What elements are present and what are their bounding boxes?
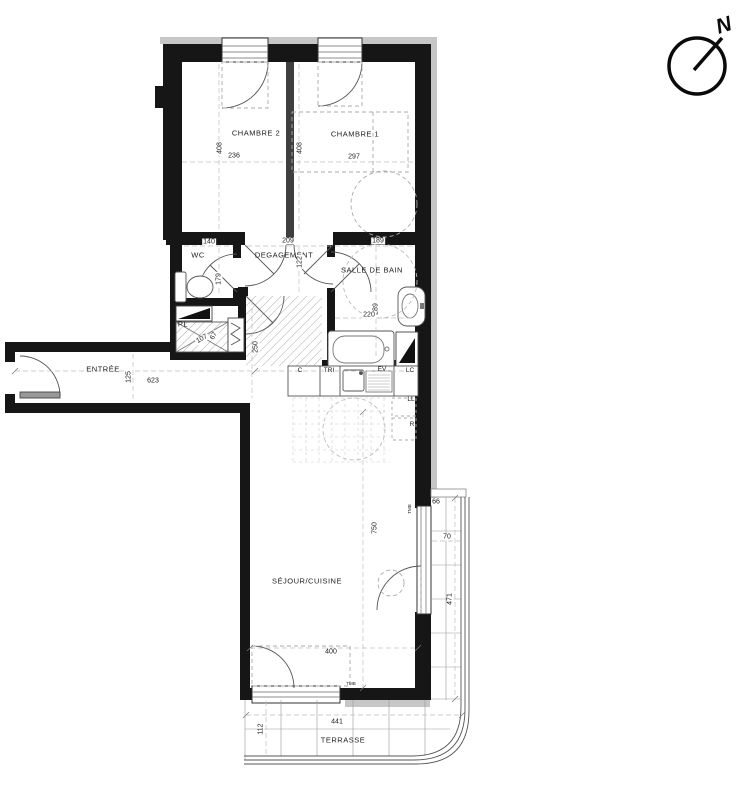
room-label-terrasse: TERRASSE xyxy=(321,736,365,745)
room-label-chambre-2: CHAMBRE 2 xyxy=(232,129,280,138)
label-tmb: TMB xyxy=(346,682,356,687)
label-lc: LC xyxy=(406,368,414,375)
window-chambre-2 xyxy=(222,38,268,62)
dimension-408: 408 xyxy=(297,141,304,155)
interior-partitions xyxy=(286,62,294,245)
dimension-220: 220 xyxy=(362,312,376,319)
kitchen-fixtures xyxy=(288,366,418,462)
dimension-140: 140 xyxy=(202,239,216,246)
window-chambre-1 xyxy=(318,38,362,62)
room-label-s-jour-cuisine: SÉJOUR/CUISINE xyxy=(272,577,342,586)
dimension-750: 750 xyxy=(372,521,379,535)
room-label-pl: PL xyxy=(178,320,188,329)
room-label-wc: WC xyxy=(191,251,205,260)
dimension-408: 408 xyxy=(217,141,224,155)
water-heater xyxy=(228,318,244,352)
compass-drawing xyxy=(669,38,725,94)
drainer xyxy=(366,371,392,392)
label-ll: LL xyxy=(407,397,414,404)
dimension-471: 471 xyxy=(447,592,454,606)
dimension-400: 400 xyxy=(324,649,338,656)
dimension-125: 125 xyxy=(126,370,133,384)
hall-hatch xyxy=(246,296,322,366)
dimension-189: 189 xyxy=(371,238,385,245)
dimension-112: 112 xyxy=(258,722,265,735)
dimension-297: 297 xyxy=(347,154,361,161)
room-label-chambre-1: CHAMBRE 1 xyxy=(331,130,379,139)
dimension-ticks xyxy=(12,368,465,718)
room-label-salle-de-bain: SALLE DE BAIN xyxy=(341,266,403,275)
window-swing-chambre-1 xyxy=(318,62,362,106)
door-entree xyxy=(20,356,60,398)
turning-circle-chambre-1 xyxy=(351,171,417,237)
dimension-250: 250 xyxy=(253,340,260,354)
dimension-179: 179 xyxy=(216,272,223,286)
compass-needle-icon xyxy=(694,38,722,70)
terrace-railing xyxy=(244,497,469,764)
bed-chambre-1 xyxy=(292,112,408,172)
dimension-209: 209 xyxy=(281,238,295,245)
label-ev: EV xyxy=(378,367,387,374)
turning-circle xyxy=(343,244,417,318)
terrace xyxy=(244,489,469,764)
kitchen-floor-grid xyxy=(293,398,390,462)
dimension-441: 441 xyxy=(330,719,344,726)
label-tri: TRI xyxy=(324,368,334,375)
dimension-70: 70 xyxy=(442,534,452,541)
room-label-degagement: DEGAGEMENT xyxy=(255,251,313,260)
dimension-236: 236 xyxy=(227,153,241,160)
room-label-entr-e: ENTRÉE xyxy=(86,365,119,374)
sejour-circle xyxy=(378,570,404,596)
label-r: R xyxy=(410,422,415,429)
toilet-tank xyxy=(175,272,186,302)
floor-plan: CHAMBRE 2CHAMBRE 1WCDEGAGEMENTSALLE DE B… xyxy=(0,0,738,800)
window-sejour-east xyxy=(417,506,431,614)
toilet-bowl xyxy=(187,276,213,298)
label-c: C xyxy=(298,368,303,375)
label-tmb: TMB xyxy=(408,504,413,514)
dimension-66: 66 xyxy=(431,499,441,506)
window-sejour-south xyxy=(252,686,340,703)
dimension-122: 122 xyxy=(297,255,304,269)
plan-drawing xyxy=(0,0,738,800)
window-swing-chambre-2 xyxy=(222,62,268,108)
dimension-623: 623 xyxy=(146,378,160,385)
